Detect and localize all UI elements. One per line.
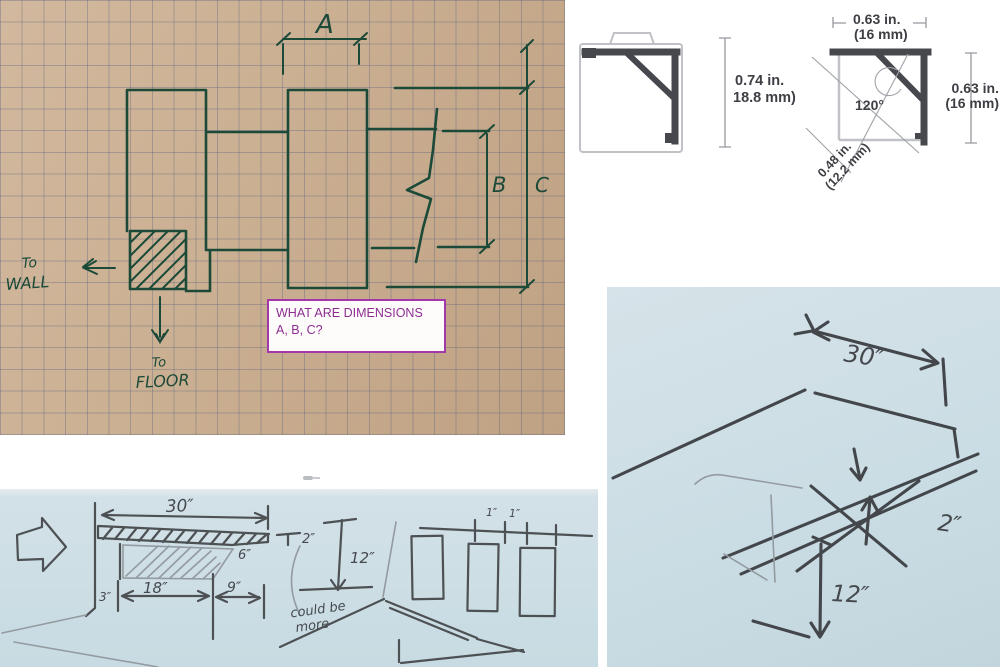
profile-drawing-left: 0.74 in. 18.8 mm) <box>580 33 796 152</box>
right-profile-top-mm: (16 mm) <box>854 26 908 42</box>
dim-18-label: 18″ <box>143 579 168 597</box>
dim-c-label: C <box>535 173 549 197</box>
dim-30-right-label: 30″ <box>842 339 885 373</box>
hatched-post <box>130 231 210 291</box>
to-floor-text2: FLOOR <box>135 370 190 392</box>
shelf-perspective-sketch: 30″ 2″ 12″ <box>607 287 1000 667</box>
wall-line <box>86 503 95 616</box>
right-profile-top-in: 0.63 in. <box>853 11 900 27</box>
dim-a-label: A <box>314 10 334 40</box>
floor-lines <box>2 615 158 667</box>
dim-30: 30″ <box>102 496 268 529</box>
floor-arrow-icon <box>152 297 168 342</box>
slat-rect <box>411 536 443 600</box>
to-wall-annotation: To WALL <box>5 255 115 294</box>
guide-strokes <box>695 475 802 582</box>
wall-arrow-icon <box>83 259 115 274</box>
dim-2-label: 2″ <box>302 532 315 547</box>
blue-section-sketch-photo: 30″ 6″ 3″ 18″ 9″ 2″ <box>0 489 598 667</box>
blue-perspective-sketch-photo: 30″ 2″ 12″ <box>607 287 1000 667</box>
bottom-dims: 3″ 18″ 9″ <box>99 574 264 639</box>
graph-paper-photo: A B C To W <box>0 0 565 435</box>
shelf-board <box>98 526 269 545</box>
slat-wall: 1″ 1″ <box>411 506 592 616</box>
question-box: WHAT ARE DIMENSIONS A, B, C? <box>267 299 446 353</box>
question-line2: A, B, C? <box>276 322 444 339</box>
question-line1: WHAT ARE DIMENSIONS <box>276 305 444 322</box>
dim-a: A <box>277 10 367 74</box>
cad-profiles-svg: 0.74 in. 18.8 mm) 0.63 in. (16 mm) 120° … <box>565 0 1000 290</box>
dim-9-label: 9″ <box>227 580 242 596</box>
dim-3-label: 3″ <box>99 590 112 604</box>
to-wall-text1: To <box>21 255 37 272</box>
dim-12: 12″ <box>300 519 375 590</box>
to-wall-text2: WALL <box>5 272 50 294</box>
dim-12-right-label: 12″ <box>831 581 871 609</box>
dim-30-label: 30″ <box>165 496 194 517</box>
left-profile-dim-in: 0.74 in. <box>735 73 784 89</box>
dim-b: B <box>480 125 506 253</box>
to-floor-text1: To <box>151 355 166 371</box>
profile-drawing-right: 0.63 in. (16 mm) 120° 0.48 in. (12.2 mm)… <box>806 11 999 193</box>
dim-6-label: 6″ <box>238 548 251 563</box>
dim-2-right-label: 2″ <box>936 510 963 539</box>
stepped-profile-sketch: A B C To W <box>0 0 565 435</box>
cad-profiles-panel: 0.74 in. 18.8 mm) 0.63 in. (16 mm) 120° … <box>565 0 1000 290</box>
pushpin-icon <box>303 474 320 482</box>
slat-1a-label: 1″ <box>486 506 498 519</box>
dim-2: 2″ <box>277 532 315 615</box>
slat-rect <box>467 544 498 612</box>
block-arrow-icon <box>17 518 66 571</box>
note-could-be-more: could be more <box>290 599 349 636</box>
to-floor-annotation: To FLOOR <box>135 297 190 392</box>
dim-12-right: 12″ <box>753 537 870 637</box>
dim-b-label: B <box>492 173 506 197</box>
corner-edges <box>613 390 958 478</box>
sketch-collage: { "colors": { "graph_paper": "#cbaf92", … <box>0 0 1000 667</box>
dim-12-label: 12″ <box>350 549 375 567</box>
right-profile-right-in: 0.63 in. <box>952 80 999 96</box>
slat-1b-label: 1″ <box>509 507 521 520</box>
slat-rect <box>520 548 556 616</box>
support-bracket <box>120 544 233 579</box>
dim-c: C <box>520 40 549 293</box>
right-profile-right-mm: (16 mm) <box>945 95 999 111</box>
break-line <box>407 109 437 262</box>
left-profile-dim-mm: 18.8 mm) <box>733 90 796 106</box>
x-mark <box>797 481 919 571</box>
angle-label: 120° <box>855 97 884 113</box>
left-profile-dim-line <box>719 38 731 147</box>
shelf-section-sketch: 30″ 6″ 3″ 18″ 9″ 2″ <box>0 489 598 667</box>
dim-2-right: 2″ <box>851 449 963 544</box>
dim-30-right: 30″ <box>795 315 946 405</box>
